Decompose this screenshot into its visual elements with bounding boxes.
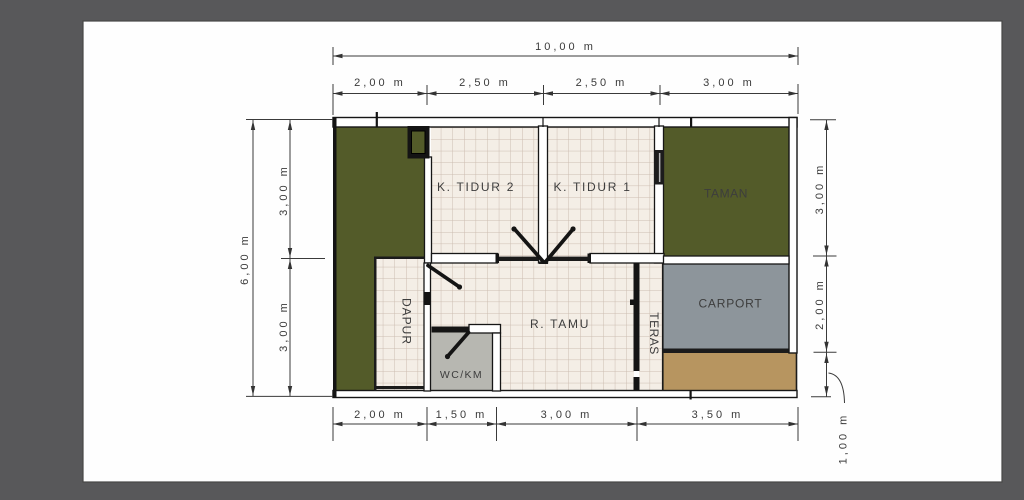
svg-text:2,00 m: 2,00 m [814, 278, 826, 330]
svg-text:2,50 m: 2,50 m [459, 77, 511, 89]
svg-text:TAMAN: TAMAN [704, 187, 748, 201]
svg-text:DAPUR: DAPUR [400, 298, 414, 345]
svg-text:1,50 m: 1,50 m [436, 409, 488, 421]
svg-text:10,00 m: 10,00 m [535, 41, 596, 53]
svg-text:CARPORT: CARPORT [698, 297, 762, 311]
svg-text:3,00 m: 3,00 m [541, 409, 593, 421]
svg-text:2,00 m: 2,00 m [354, 77, 406, 89]
svg-text:3,00 m: 3,00 m [278, 164, 290, 216]
svg-text:3,00 m: 3,00 m [814, 163, 826, 215]
svg-text:3,50 m: 3,50 m [692, 409, 744, 421]
svg-text:3,00 m: 3,00 m [703, 77, 755, 89]
svg-text:K. TIDUR 2: K. TIDUR 2 [437, 180, 515, 194]
svg-text:1,00 m: 1,00 m [838, 413, 850, 465]
svg-text:WC/KM: WC/KM [440, 369, 483, 381]
svg-text:2,00 m: 2,00 m [354, 409, 406, 421]
svg-text:K. TIDUR 1: K. TIDUR 1 [553, 180, 631, 194]
svg-text:6,00 m: 6,00 m [239, 233, 251, 285]
svg-text:3,00 m: 3,00 m [278, 300, 290, 352]
svg-text:2,50 m: 2,50 m [576, 77, 628, 89]
svg-text:TERAS: TERAS [647, 312, 661, 355]
svg-text:R. TAMU: R. TAMU [530, 317, 590, 331]
